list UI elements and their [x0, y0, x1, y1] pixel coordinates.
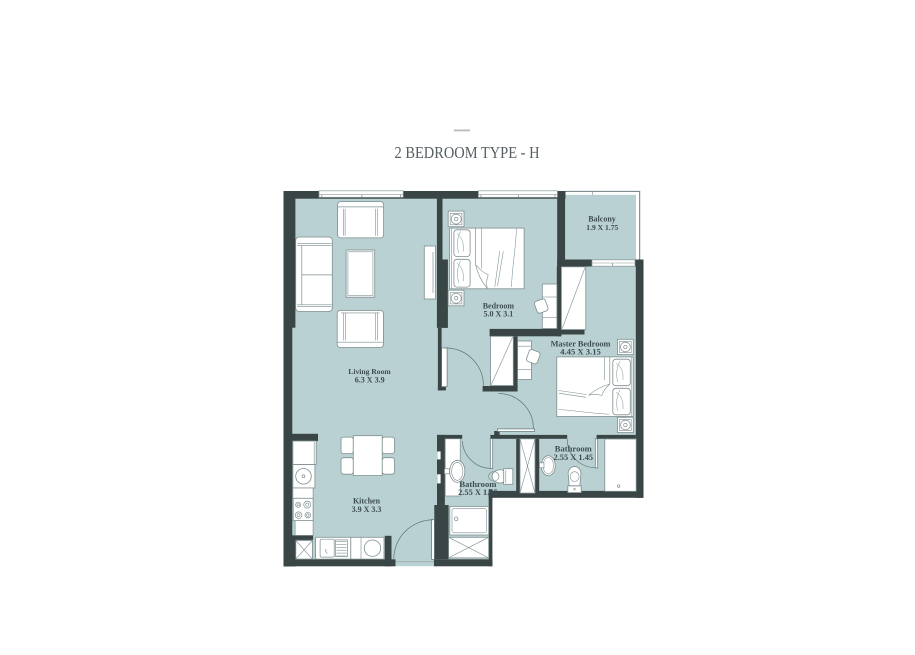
svg-text:2.55 X 1.45: 2.55 X 1.45 — [554, 453, 594, 462]
svg-text:1.9 X 1.75: 1.9 X 1.75 — [586, 223, 618, 232]
svg-text:2 BEDROOM TYPE - H: 2 BEDROOM TYPE - H — [395, 143, 540, 162]
svg-text:4.45 X 3.15: 4.45 X 3.15 — [560, 347, 601, 357]
svg-text:6.3 X 3.9: 6.3 X 3.9 — [355, 375, 385, 384]
svg-text:3.9 X 3.3: 3.9 X 3.3 — [352, 505, 382, 514]
svg-text:2.55 X 1.85: 2.55 X 1.85 — [458, 488, 498, 497]
svg-text:5.0 X 3.1: 5.0 X 3.1 — [484, 310, 514, 319]
